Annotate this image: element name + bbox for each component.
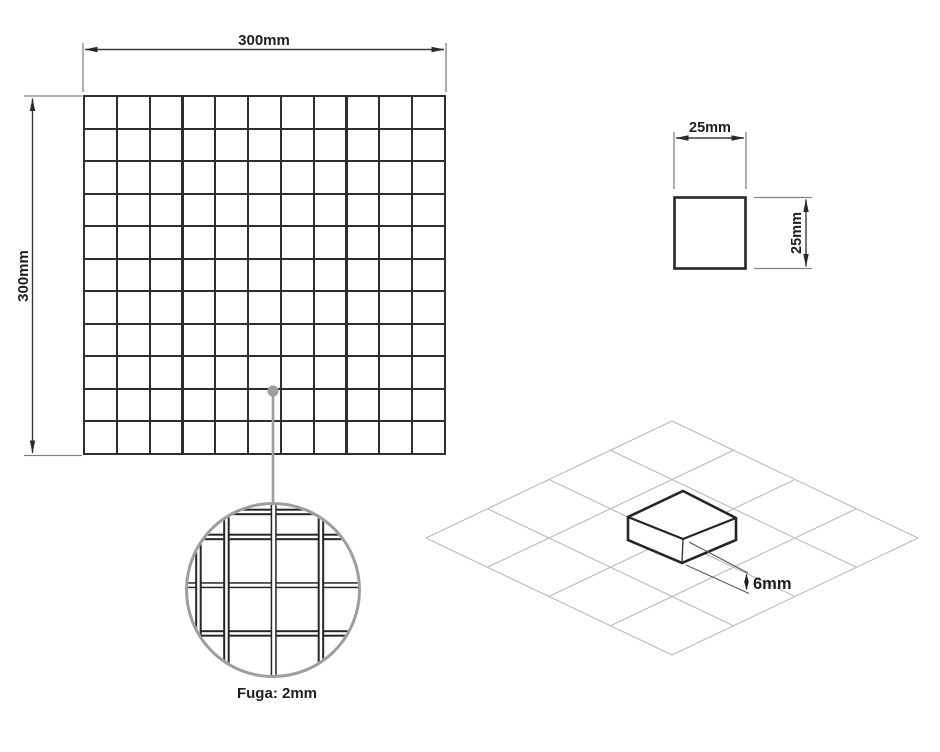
single-tile-square [675,198,746,269]
tile-height-label: 25mm [789,212,805,254]
tile-width-label: 25mm [689,120,731,136]
sheet-height-dimension: 300mm [15,96,82,456]
tile-height-dimension: 25mm [754,198,812,269]
sheet-height-label: 300mm [15,250,32,302]
tile-spec-diagram: 300mm 300mm Fuga: 2mm 25mm [0,0,940,752]
sheet-width-label: 300mm [238,32,290,49]
sheet-width-dimension: 300mm [83,32,446,92]
detail-leader [267,385,278,502]
thickness-label: 6mm [753,575,792,593]
diagram-overlay: 300mm 300mm Fuga: 2mm 25mm [0,0,940,752]
extension-line [686,565,749,594]
tile-width-dimension: 25mm [674,120,746,189]
single-tile-view: 25mm 25mm [674,120,812,269]
leader-dot [267,385,278,396]
grout-label: Fuga: 2mm [237,685,317,702]
